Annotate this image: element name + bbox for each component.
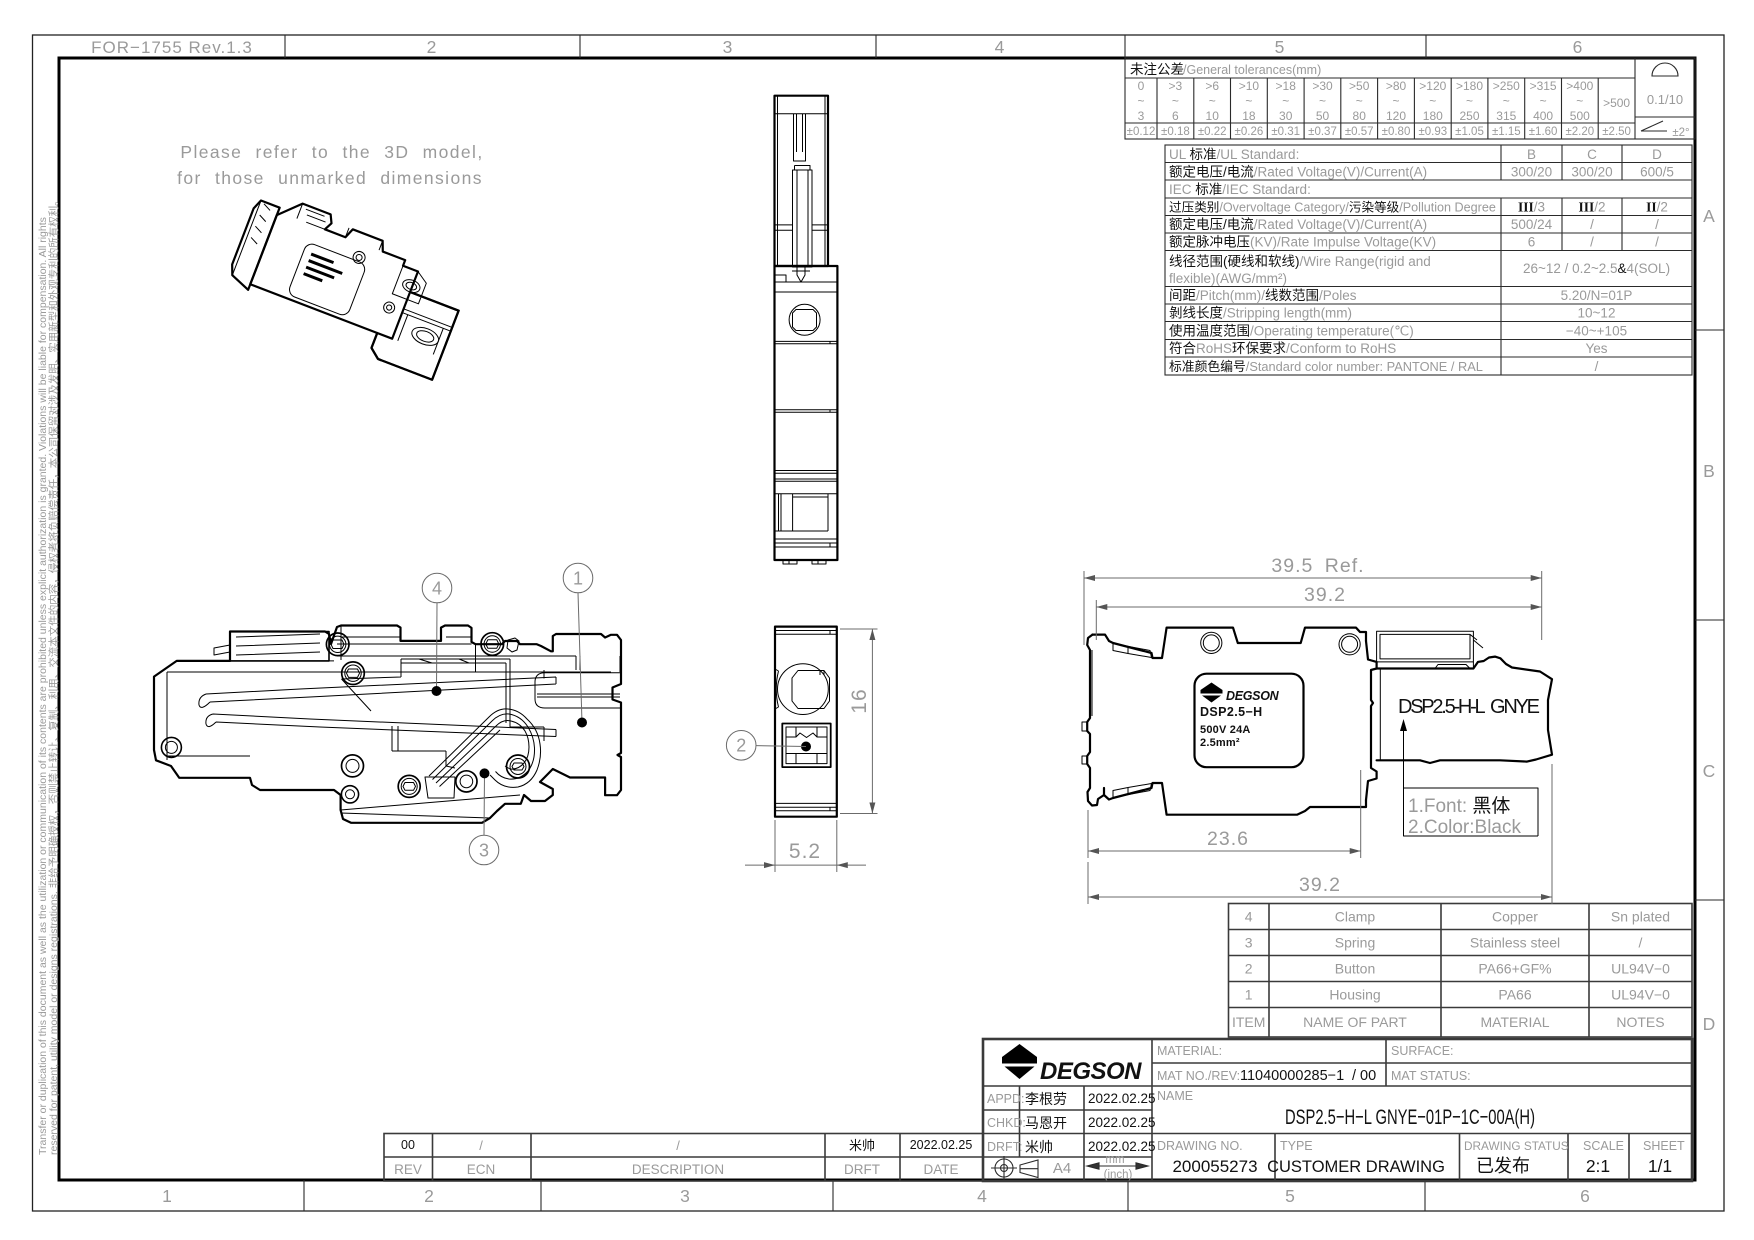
svg-text:2022.02.25: 2022.02.25 xyxy=(910,1138,973,1152)
svg-text:6: 6 xyxy=(1172,109,1179,123)
svg-text:400: 400 xyxy=(1533,109,1553,123)
svg-text:额定电压/电流/Rated Voltage(V)/Curre: 额定电压/电流/Rated Voltage(V)/Current(A) xyxy=(1169,165,1427,180)
svg-text:未注公差: 未注公差 xyxy=(1130,62,1184,77)
svg-text:ECN: ECN xyxy=(467,1162,496,1177)
svg-text:±0.31: ±0.31 xyxy=(1271,126,1300,138)
svg-text:5.20/N=01P: 5.20/N=01P xyxy=(1561,288,1633,303)
svg-text:2: 2 xyxy=(1245,961,1253,977)
svg-text:米帅: 米帅 xyxy=(849,1138,875,1153)
svg-text:2.Color:Black: 2.Color:Black xyxy=(1408,817,1521,838)
svg-text:5: 5 xyxy=(1285,1186,1295,1206)
svg-text:2022.02.25: 2022.02.25 xyxy=(1088,1115,1156,1130)
svg-text:3: 3 xyxy=(723,37,734,57)
svg-text:~: ~ xyxy=(1540,94,1547,108)
svg-text:额定电压/电流/Rated Voltage(V)/Curre: 额定电压/电流/Rated Voltage(V)/Current(A) xyxy=(1169,217,1427,232)
svg-text:1: 1 xyxy=(162,1186,172,1206)
svg-text:6: 6 xyxy=(1580,1186,1590,1206)
svg-text:II/2: II/2 xyxy=(1646,200,1668,215)
svg-text:符合RoHS环保要求/Conform to RoHS: 符合RoHS环保要求/Conform to RoHS xyxy=(1169,341,1396,356)
svg-text:C: C xyxy=(1587,147,1597,162)
svg-text:2022.02.25: 2022.02.25 xyxy=(1088,1091,1156,1106)
svg-text:/: / xyxy=(1655,235,1659,250)
svg-text:50: 50 xyxy=(1316,109,1330,123)
svg-text:500/24: 500/24 xyxy=(1511,217,1553,232)
svg-text:~: ~ xyxy=(1576,94,1583,108)
svg-text:11040000285−1: 11040000285−1 xyxy=(1240,1068,1344,1084)
svg-text:DRAWING NO.: DRAWING NO. xyxy=(1157,1139,1243,1153)
svg-text:16: 16 xyxy=(848,688,871,713)
svg-text:500: 500 xyxy=(1570,109,1590,123)
svg-text:Yes: Yes xyxy=(1585,341,1607,356)
svg-text:A: A xyxy=(1703,206,1715,226)
svg-text:MATERIAL:: MATERIAL: xyxy=(1157,1044,1222,1058)
svg-text:4: 4 xyxy=(995,37,1006,57)
svg-text:SURFACE:: SURFACE: xyxy=(1391,1044,1454,1058)
svg-text:III/3: III/3 xyxy=(1518,200,1545,215)
svg-text:A4: A4 xyxy=(1053,1160,1071,1177)
svg-text:MAT STATUS:: MAT STATUS: xyxy=(1391,1069,1471,1083)
svg-text:200055273: 200055273 xyxy=(1172,1157,1257,1176)
svg-text:±1.05: ±1.05 xyxy=(1455,126,1484,138)
svg-text:500V 24A: 500V 24A xyxy=(1200,724,1251,736)
svg-text:39.2: 39.2 xyxy=(1304,584,1346,606)
svg-text:已发布: 已发布 xyxy=(1476,1156,1530,1176)
svg-text:>180: >180 xyxy=(1456,79,1483,93)
svg-text:Stainless steel: Stainless steel xyxy=(1470,935,1560,951)
svg-text:23.6: 23.6 xyxy=(1207,828,1249,850)
svg-text:±2.20: ±2.20 xyxy=(1565,126,1594,138)
svg-text:2: 2 xyxy=(427,37,438,57)
svg-text:>250: >250 xyxy=(1493,79,1520,93)
svg-text:SHEET: SHEET xyxy=(1643,1139,1685,1153)
svg-text:30: 30 xyxy=(1279,109,1293,123)
svg-text:DEGSON: DEGSON xyxy=(1040,1058,1142,1085)
svg-text:Spring: Spring xyxy=(1335,935,1375,951)
svg-text:Copper: Copper xyxy=(1492,909,1538,925)
svg-text:Clamp: Clamp xyxy=(1335,909,1376,925)
svg-text:±0.57: ±0.57 xyxy=(1345,126,1374,138)
svg-text:3: 3 xyxy=(680,1186,690,1206)
svg-text:>80: >80 xyxy=(1386,79,1407,93)
svg-text:4: 4 xyxy=(1245,909,1253,925)
svg-text:3: 3 xyxy=(1138,109,1145,123)
svg-text:/: / xyxy=(1595,359,1599,374)
svg-text:250: 250 xyxy=(1459,109,1479,123)
svg-text:/General tolerances(mm): /General tolerances(mm) xyxy=(1183,63,1321,77)
svg-text:NOTES: NOTES xyxy=(1616,1014,1664,1030)
svg-text:±0.93: ±0.93 xyxy=(1418,126,1447,138)
svg-text:2: 2 xyxy=(424,1186,434,1206)
svg-text:IEC 标准/IEC Standard:: IEC 标准/IEC Standard: xyxy=(1169,182,1311,197)
svg-text:Button: Button xyxy=(1335,961,1375,977)
svg-text:D: D xyxy=(1652,147,1662,162)
svg-text:ITEM: ITEM xyxy=(1232,1014,1265,1030)
svg-text:李根劳: 李根劳 xyxy=(1025,1091,1067,1107)
svg-text:2022.02.25: 2022.02.25 xyxy=(1088,1139,1156,1154)
svg-text:39.2: 39.2 xyxy=(1299,874,1341,896)
svg-text:>6: >6 xyxy=(1205,79,1219,93)
svg-text:PA66+GF%: PA66+GF% xyxy=(1478,961,1551,977)
svg-text:(inch): (inch) xyxy=(1104,1169,1133,1181)
svg-text:39.5 Ref.: 39.5 Ref. xyxy=(1271,555,1364,577)
svg-text:600/5: 600/5 xyxy=(1640,165,1674,180)
svg-text:6: 6 xyxy=(1573,37,1584,57)
svg-text:Housing: Housing xyxy=(1329,987,1380,1003)
svg-text:315: 315 xyxy=(1496,109,1516,123)
svg-text:额定脉冲电压(KV)/Rate Impulse Voltag: 额定脉冲电压(KV)/Rate Impulse Voltage(KV) xyxy=(1169,235,1436,250)
svg-text:剝线长度/Stripping length(mm): 剝线长度/Stripping length(mm) xyxy=(1169,306,1352,321)
svg-text:DSP2.5−H: DSP2.5−H xyxy=(1200,705,1263,719)
svg-text:±0.18: ±0.18 xyxy=(1161,126,1190,138)
svg-text:APPD:: APPD: xyxy=(987,1092,1025,1106)
svg-text:C: C xyxy=(1703,761,1716,781)
svg-text:~: ~ xyxy=(1209,94,1216,108)
svg-text:reserved for patent, utility m: reserved for patent, utility model or de… xyxy=(47,195,60,1155)
svg-text:>10: >10 xyxy=(1239,79,1260,93)
svg-text:马恩开: 马恩开 xyxy=(1025,1115,1067,1131)
svg-text:~: ~ xyxy=(1503,94,1510,108)
svg-text:/: / xyxy=(479,1138,483,1153)
svg-text:UL94V−0: UL94V−0 xyxy=(1611,987,1670,1003)
svg-text:~: ~ xyxy=(1319,94,1326,108)
svg-text:±2.50: ±2.50 xyxy=(1602,126,1631,138)
svg-text:~: ~ xyxy=(1245,94,1252,108)
svg-text:26~12 / 0.2~2.5&4(SOL): 26~12 / 0.2~2.5&4(SOL) xyxy=(1523,261,1670,276)
svg-text:>500: >500 xyxy=(1603,96,1630,110)
svg-text:00: 00 xyxy=(401,1138,415,1152)
svg-text:mm: mm xyxy=(1105,1154,1124,1166)
svg-text:±0.80: ±0.80 xyxy=(1382,126,1411,138)
svg-text:B: B xyxy=(1703,461,1715,481)
svg-text:4: 4 xyxy=(977,1186,987,1206)
svg-text:5: 5 xyxy=(1275,37,1286,57)
svg-text:DRAWING STATUS: DRAWING STATUS xyxy=(1464,1139,1569,1153)
svg-text:±1.15: ±1.15 xyxy=(1492,126,1521,138)
svg-text:使用温度范围/Operating temperature(℃: 使用温度范围/Operating temperature(℃) xyxy=(1169,323,1414,339)
svg-text:>315: >315 xyxy=(1530,79,1557,93)
svg-text:±2°: ±2° xyxy=(1672,127,1689,139)
svg-text:>18: >18 xyxy=(1276,79,1297,93)
svg-text:DEGSON: DEGSON xyxy=(1226,689,1280,703)
svg-text:~: ~ xyxy=(1392,94,1399,108)
svg-text:/ 00: / 00 xyxy=(1352,1068,1376,1084)
svg-text:MAT NO./REV:: MAT NO./REV: xyxy=(1157,1069,1240,1083)
svg-text:6: 6 xyxy=(1528,235,1536,250)
svg-text:>400: >400 xyxy=(1566,79,1593,93)
svg-text:±0.22: ±0.22 xyxy=(1198,126,1227,138)
svg-text:1.Font: 黑体: 1.Font: 黑体 xyxy=(1408,795,1510,817)
svg-text:NAME: NAME xyxy=(1157,1089,1193,1103)
svg-text:±1.60: ±1.60 xyxy=(1529,126,1558,138)
svg-text:120: 120 xyxy=(1386,109,1406,123)
svg-text:Please refer to the 3D model,: Please refer to the 3D model, xyxy=(180,142,483,162)
svg-text:SCALE: SCALE xyxy=(1583,1139,1624,1153)
svg-text:3: 3 xyxy=(479,841,489,861)
svg-text:>50: >50 xyxy=(1349,79,1370,93)
svg-text:>3: >3 xyxy=(1169,79,1183,93)
svg-text:~: ~ xyxy=(1282,94,1289,108)
svg-text:2: 2 xyxy=(736,736,746,756)
svg-text:300/20: 300/20 xyxy=(1511,165,1552,180)
svg-text:Sn plated: Sn plated xyxy=(1611,909,1670,925)
svg-text:/: / xyxy=(1590,217,1594,232)
svg-text:~: ~ xyxy=(1466,94,1473,108)
svg-text:±0.26: ±0.26 xyxy=(1235,126,1264,138)
svg-text:0.1/10: 0.1/10 xyxy=(1647,92,1683,107)
svg-text:NAME OF PART: NAME OF PART xyxy=(1303,1014,1407,1030)
svg-text:线径范围(硬线和软线)/Wire Range(rigid a: 线径范围(硬线和软线)/Wire Range(rigid and xyxy=(1169,254,1431,269)
svg-text:10: 10 xyxy=(1206,109,1220,123)
svg-text:REV: REV xyxy=(394,1162,422,1177)
svg-text:UL 标准/UL Standard:: UL 标准/UL Standard: xyxy=(1169,147,1299,162)
svg-text:米帅: 米帅 xyxy=(1025,1139,1053,1155)
svg-text:flexible)(AWG/mm²): flexible)(AWG/mm²) xyxy=(1169,271,1287,286)
svg-text:DSP2.5-H-L GNYE: DSP2.5-H-L GNYE xyxy=(1398,696,1540,718)
svg-text:/: / xyxy=(1639,935,1643,951)
svg-text:>30: >30 xyxy=(1312,79,1333,93)
svg-text:过压类别/Overvoltage Category/污染等级: 过压类别/Overvoltage Category/污染等级/Pollution… xyxy=(1169,200,1496,215)
svg-text:80: 80 xyxy=(1353,109,1367,123)
svg-text:CUSTOMER DRAWING: CUSTOMER DRAWING xyxy=(1267,1158,1445,1176)
svg-text:UL94V−0: UL94V−0 xyxy=(1611,961,1670,977)
svg-text:~: ~ xyxy=(1137,94,1144,108)
svg-text:PA66: PA66 xyxy=(1498,987,1531,1003)
svg-text:~: ~ xyxy=(1429,94,1436,108)
svg-text:/: / xyxy=(1655,217,1659,232)
svg-text:III/2: III/2 xyxy=(1578,200,1605,215)
svg-text:~: ~ xyxy=(1172,94,1179,108)
svg-text:>120: >120 xyxy=(1419,79,1446,93)
svg-text:D: D xyxy=(1703,1014,1716,1034)
svg-text:±0.12: ±0.12 xyxy=(1127,126,1156,138)
svg-text:/: / xyxy=(1590,235,1594,250)
svg-text:CHKD:: CHKD: xyxy=(987,1116,1026,1130)
svg-text:DESCRIPTION: DESCRIPTION xyxy=(632,1162,724,1177)
svg-text:1: 1 xyxy=(573,569,583,589)
svg-text:180: 180 xyxy=(1423,109,1443,123)
svg-text:4: 4 xyxy=(432,579,442,599)
svg-text:FOR−1755 Rev.1.3: FOR−1755 Rev.1.3 xyxy=(91,38,253,57)
svg-text:DATE: DATE xyxy=(923,1162,958,1177)
svg-text:2:1: 2:1 xyxy=(1586,1156,1610,1176)
svg-text:300/20: 300/20 xyxy=(1571,165,1612,180)
svg-text:标准颜色编号/Standard color number:: 标准颜色编号/Standard color number: PANTONE / … xyxy=(1169,359,1483,374)
svg-text:18: 18 xyxy=(1242,109,1256,123)
svg-text:±0.37: ±0.37 xyxy=(1308,126,1337,138)
svg-text:5.2: 5.2 xyxy=(789,840,821,863)
svg-text:DSP2.5−H−L GNYE−01P−1C−00A(H): DSP2.5−H−L GNYE−01P−1C−00A(H) xyxy=(1285,1105,1535,1129)
svg-text:1: 1 xyxy=(1245,987,1253,1003)
svg-text:−40~+105: −40~+105 xyxy=(1566,324,1627,339)
svg-text:B: B xyxy=(1527,147,1536,162)
svg-text:~: ~ xyxy=(1356,94,1363,108)
svg-text:2.5mm²: 2.5mm² xyxy=(1200,737,1240,749)
svg-text:3: 3 xyxy=(1245,935,1253,951)
svg-text:/: / xyxy=(676,1138,680,1153)
svg-text:for those unmarked dimensions: for those unmarked dimensions xyxy=(177,168,483,188)
svg-text:DRFT: DRFT xyxy=(844,1162,880,1177)
svg-text:1/1: 1/1 xyxy=(1648,1156,1672,1176)
svg-text:10~12: 10~12 xyxy=(1578,306,1616,321)
svg-text:TYPE: TYPE xyxy=(1280,1139,1313,1153)
svg-text:0: 0 xyxy=(1138,79,1145,93)
svg-text:DRFT:: DRFT: xyxy=(987,1140,1022,1154)
svg-text:间距/Pitch(mm)/线数范围/Poles: 间距/Pitch(mm)/线数范围/Poles xyxy=(1169,288,1357,303)
svg-text:MATERIAL: MATERIAL xyxy=(1481,1014,1550,1030)
